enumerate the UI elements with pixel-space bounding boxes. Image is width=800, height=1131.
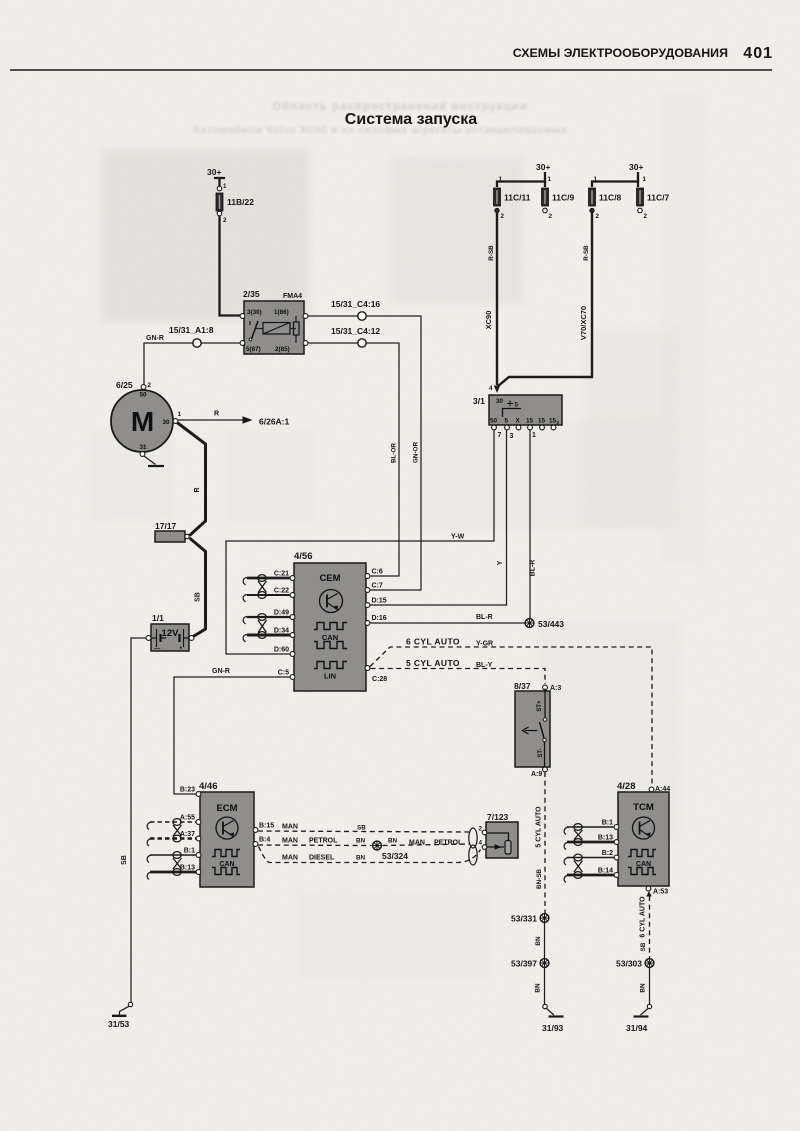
svg-text:CEM: CEM	[319, 573, 340, 584]
svg-text:BN-SB: BN-SB	[536, 869, 543, 889]
svg-text:2: 2	[501, 213, 505, 220]
svg-text:12V: 12V	[162, 628, 180, 639]
svg-text:V70/XC70: V70/XC70	[579, 306, 588, 340]
svg-text:B:1: B:1	[602, 820, 613, 827]
svg-text:1: 1	[499, 176, 503, 183]
svg-text:A:37: A:37	[180, 831, 195, 838]
svg-text:BN: BN	[356, 838, 366, 845]
svg-text:B:15: B:15	[259, 823, 274, 830]
svg-text:A:53: A:53	[653, 889, 668, 896]
svg-text:31: 31	[139, 444, 147, 451]
svg-text:4/46: 4/46	[199, 781, 218, 792]
svg-text:15: 15	[526, 418, 534, 425]
svg-text:4: 4	[489, 385, 493, 392]
svg-text:Y-GR: Y-GR	[476, 641, 493, 648]
svg-text:2: 2	[557, 420, 560, 426]
svg-text:D:60: D:60	[274, 647, 289, 654]
svg-text:5: 5	[515, 402, 519, 409]
svg-text:11B/22: 11B/22	[227, 197, 254, 207]
svg-text:4/56: 4/56	[294, 551, 313, 562]
svg-text:LIN: LIN	[324, 672, 336, 681]
svg-text:GN-R: GN-R	[146, 335, 164, 342]
svg-text:7: 7	[498, 432, 502, 439]
svg-text:MAN: MAN	[282, 824, 298, 831]
svg-text:Система запуска: Система запуска	[345, 111, 477, 128]
svg-text:15/31_C4:16: 15/31_C4:16	[331, 299, 380, 309]
svg-text:50: 50	[490, 418, 498, 425]
svg-text:30+: 30+	[629, 162, 643, 172]
svg-text:2: 2	[644, 213, 648, 220]
svg-text:R: R	[214, 411, 219, 418]
svg-text:BN: BN	[388, 838, 398, 845]
svg-text:53/331: 53/331	[511, 914, 537, 924]
svg-text:ST-: ST-	[538, 748, 544, 757]
svg-text:BL-R: BL-R	[476, 614, 493, 621]
svg-text:5 CYL AUTO: 5 CYL AUTO	[536, 806, 543, 848]
svg-text:5: 5	[505, 418, 509, 425]
svg-text:2: 2	[479, 826, 483, 833]
svg-text:C:5: C:5	[278, 670, 289, 677]
svg-text:50: 50	[139, 392, 147, 399]
svg-text:PETROL: PETROL	[434, 840, 463, 847]
svg-text:D:49: D:49	[274, 610, 289, 617]
svg-text:D:34: D:34	[274, 628, 289, 635]
svg-text:5 CYL AUTO: 5 CYL AUTO	[406, 658, 460, 668]
svg-text:2: 2	[223, 217, 227, 224]
svg-text:C:21: C:21	[274, 571, 289, 578]
svg-text:SB: SB	[357, 825, 366, 832]
svg-text:1: 1	[643, 176, 647, 183]
svg-text:+: +	[179, 645, 183, 652]
svg-text:6 CYL AUTO: 6 CYL AUTO	[640, 896, 647, 938]
svg-text:BL-R: BL-R	[530, 560, 537, 577]
svg-text:BN: BN	[535, 936, 542, 946]
svg-text:1/1: 1/1	[152, 613, 164, 623]
svg-text:SB: SB	[121, 855, 128, 865]
svg-text:B:14: B:14	[598, 868, 613, 875]
svg-text:BL-OR: BL-OR	[391, 443, 398, 463]
svg-text:15/31_C4:12: 15/31_C4:12	[331, 326, 380, 336]
svg-text:A:55: A:55	[180, 815, 195, 822]
svg-text:R-SB: R-SB	[488, 245, 495, 261]
svg-text:GN-R: GN-R	[212, 668, 230, 675]
svg-text:11C/11: 11C/11	[504, 193, 531, 203]
svg-text:6/26A:1: 6/26A:1	[259, 417, 290, 427]
svg-text:C:28: C:28	[372, 676, 387, 683]
svg-text:ECM: ECM	[216, 803, 237, 814]
svg-text:B:13: B:13	[180, 865, 195, 872]
svg-text:30: 30	[162, 419, 170, 426]
svg-text:BN: BN	[640, 983, 647, 993]
svg-text:MAN: MAN	[409, 840, 425, 847]
svg-text:17/17: 17/17	[155, 521, 177, 531]
svg-text:SB: SB	[640, 942, 647, 951]
svg-text:M: M	[131, 406, 154, 437]
svg-text:6/25: 6/25	[116, 380, 133, 390]
svg-text:2(85): 2(85)	[275, 346, 290, 353]
svg-text:Y-W: Y-W	[451, 534, 465, 541]
svg-text:11C/7: 11C/7	[647, 193, 669, 203]
svg-text:PETROL: PETROL	[309, 838, 338, 845]
svg-text:4/28: 4/28	[617, 781, 636, 792]
svg-text:FMA4: FMA4	[283, 293, 302, 300]
svg-text:B:13: B:13	[598, 835, 613, 842]
svg-text:—: —	[154, 645, 161, 652]
svg-text:15/31_A1:8: 15/31_A1:8	[169, 325, 214, 335]
svg-text:7/123: 7/123	[487, 812, 509, 822]
svg-text:3: 3	[510, 433, 514, 440]
svg-text:A:3: A:3	[550, 685, 561, 692]
svg-text:6 CYL AUTO: 6 CYL AUTO	[406, 637, 460, 647]
svg-text:1: 1	[178, 411, 182, 418]
svg-text:B:2: B:2	[602, 850, 613, 857]
svg-text:СХЕМЫ ЭЛЕКТРООБОРУДОВАНИЯ: СХЕМЫ ЭЛЕКТРООБОРУДОВАНИЯ	[513, 46, 728, 60]
svg-text:11C/8: 11C/8	[599, 193, 621, 203]
svg-text:11C/9: 11C/9	[552, 193, 574, 203]
svg-text:XC90: XC90	[484, 311, 493, 330]
svg-text:30+: 30+	[207, 167, 221, 177]
svg-text:15: 15	[549, 418, 557, 425]
svg-text:1: 1	[223, 183, 227, 190]
svg-text:C:7: C:7	[372, 583, 383, 590]
svg-text:SB: SB	[195, 592, 202, 602]
svg-text:C:22: C:22	[274, 588, 289, 595]
svg-text:1: 1	[548, 176, 552, 183]
svg-text:3(30): 3(30)	[247, 309, 262, 316]
svg-text:CAN: CAN	[322, 633, 338, 642]
svg-text:MAN: MAN	[282, 855, 298, 862]
svg-text:D:15: D:15	[372, 598, 387, 605]
svg-text:30: 30	[496, 398, 504, 405]
svg-text:B:23: B:23	[180, 787, 195, 794]
svg-text:8/37: 8/37	[514, 681, 531, 691]
svg-text:GN-OR: GN-OR	[413, 442, 420, 463]
svg-text:30+: 30+	[536, 162, 550, 172]
svg-text:4: 4	[479, 840, 483, 847]
svg-text:53/324: 53/324	[382, 851, 408, 861]
svg-text:31/94: 31/94	[626, 1023, 648, 1033]
svg-text:31/53: 31/53	[108, 1019, 130, 1029]
svg-text:2/35: 2/35	[243, 289, 260, 299]
svg-text:TCM: TCM	[633, 802, 654, 813]
svg-text:2: 2	[148, 382, 152, 389]
svg-text:MAN: MAN	[282, 838, 298, 845]
svg-text:C:6: C:6	[372, 569, 383, 576]
svg-text:31/93: 31/93	[542, 1023, 564, 1033]
svg-text:15: 15	[538, 418, 546, 425]
svg-text:1(86): 1(86)	[274, 309, 289, 316]
svg-text:53/443: 53/443	[538, 619, 564, 629]
svg-text:DIESEL: DIESEL	[309, 855, 335, 862]
svg-text:1: 1	[594, 176, 598, 183]
svg-text:Y: Y	[497, 560, 504, 565]
svg-text:5(87): 5(87)	[246, 346, 261, 353]
svg-text:BN: BN	[535, 983, 542, 993]
svg-text:D:16: D:16	[372, 615, 387, 622]
svg-text:401: 401	[743, 45, 773, 62]
svg-text:ST+: ST+	[537, 700, 543, 712]
svg-text:R-SB: R-SB	[583, 245, 590, 261]
svg-text:BL-Y: BL-Y	[476, 662, 493, 669]
svg-text:1: 1	[532, 432, 536, 439]
svg-text:53/303: 53/303	[616, 959, 642, 969]
svg-text:B:1: B:1	[184, 848, 195, 855]
svg-text:BN: BN	[356, 855, 366, 862]
svg-text:R: R	[194, 487, 201, 492]
svg-text:3/1: 3/1	[473, 396, 485, 406]
svg-text:2: 2	[596, 213, 600, 220]
svg-text:2: 2	[549, 213, 553, 220]
svg-text:53/397: 53/397	[511, 959, 537, 969]
svg-text:A:9: A:9	[531, 771, 542, 778]
svg-text:B:4: B:4	[259, 837, 270, 844]
